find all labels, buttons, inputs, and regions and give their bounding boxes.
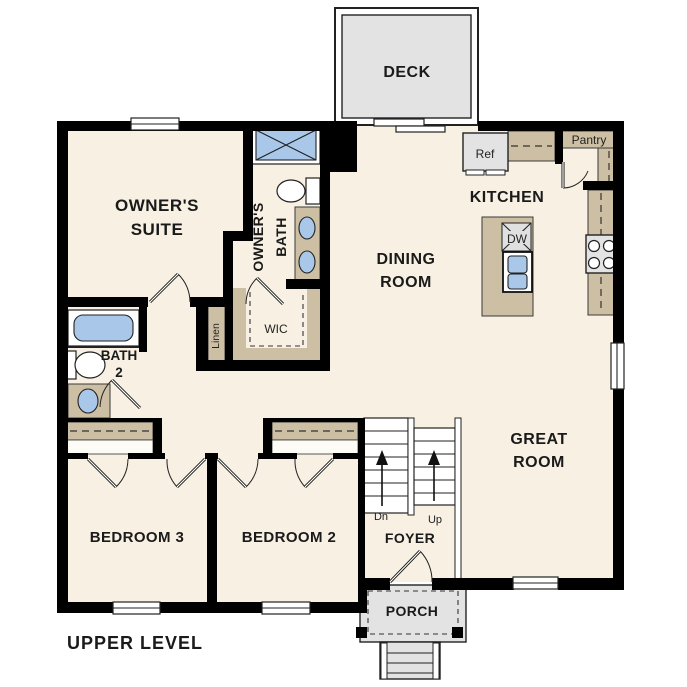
stairs-down-label: Dn [374,511,388,523]
window-great-room-front [513,577,558,589]
dining-room-label-line1: DINING [377,251,436,268]
great-room-label-line1: GREAT [510,431,567,448]
bath2-label-line1: BATH [101,348,138,363]
owners-suite-label-line1: OWNER'S [115,196,199,215]
owners-bath-label-line1: OWNER'S [250,202,266,271]
bath2-label-line2: 2 [115,365,123,380]
bath2-sink [78,389,98,413]
stairs-down-flight [364,418,408,513]
refrigerator-label: Ref [476,147,495,161]
vanity-sink-2 [299,251,315,273]
wic-label: WIC [264,322,288,336]
linen-label: Linen [210,323,222,349]
vanity-sink-1 [299,217,315,239]
porch-post-left [356,627,367,638]
window-owners-suite [131,118,179,130]
toilet-bowl [277,180,305,202]
toilet-tank [306,178,320,204]
great-room-label-line2: ROOM [513,454,565,471]
level-title: UPPER LEVEL [67,633,203,653]
dining-room-label-line2: ROOM [380,274,432,291]
stairs-rail [455,418,461,580]
stairs-divider [408,418,414,515]
deck-label: DECK [383,64,430,81]
bedroom2-label: BEDROOM 2 [242,529,336,546]
kitchen-label: KITCHEN [470,189,545,206]
porch-area [360,585,466,679]
dishwasher-label: DW [507,232,528,246]
owners-suite-label-line2: SUITE [131,220,184,239]
foyer-label: FOYER [385,530,435,546]
pantry-label: Pantry [572,133,607,147]
floor-plan-drawing: DECK OWNER'S SUITE OWNER'S BATH KITCHEN … [0,0,687,687]
porch-label: PORCH [386,603,439,619]
owners-bath-label-line2: BATH [273,217,289,256]
window-bedroom3 [113,602,160,614]
bedroom3-label: BEDROOM 3 [90,529,184,546]
stairs-up-label: Up [428,514,442,526]
window-great-room-side [611,343,624,389]
porch-post-right [452,627,463,638]
window-bedroom2 [262,602,310,614]
floor-plan-page: DECK OWNER'S SUITE OWNER'S BATH KITCHEN … [0,0,687,687]
